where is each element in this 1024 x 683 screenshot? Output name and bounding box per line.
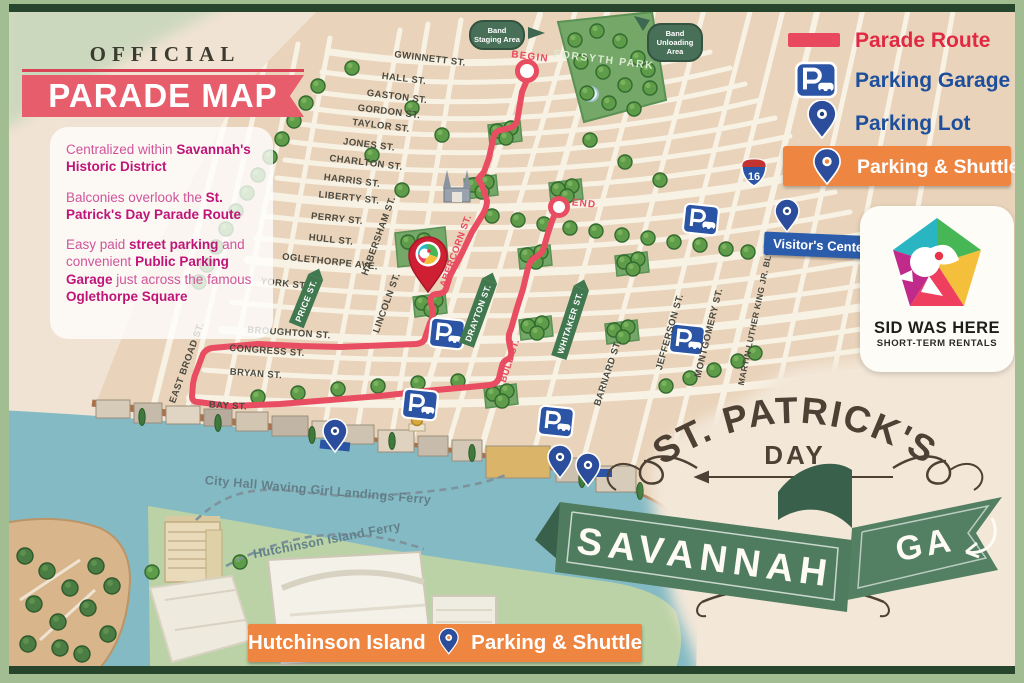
parking-garage-icon (683, 203, 720, 235)
band-unloading-area: Band Unloading Area (647, 23, 703, 62)
parking-garage-icon (538, 405, 575, 437)
parking-garage-icon (402, 388, 439, 420)
parking-garage-legend-icon (794, 60, 838, 100)
hutchinson-island-banner: Hutchinson Island Parking & Shuttle (248, 624, 642, 662)
parking-shuttle-legend-icon (812, 148, 842, 190)
hotel-tower (165, 516, 222, 582)
parade-map-poster: 16 ST. PATRICK'S DAY (0, 0, 1024, 683)
parking-lot-legend-icon (806, 100, 838, 144)
info-panel: Centralized within Savannah's Historic D… (50, 127, 273, 339)
sid-line2: SHORT-TERM RENTALS (860, 338, 1014, 349)
hutchinson-island-label: Hutchinson Island (248, 631, 426, 655)
street-label-bay: BAY ST. (209, 400, 248, 413)
banner-accent-line (22, 69, 304, 72)
i16-number: 16 (748, 171, 760, 183)
parade-map-title-banner: PARADE MAP (22, 75, 304, 117)
parade-map-title: PARADE MAP (48, 77, 277, 115)
route-begin-circle (518, 62, 537, 81)
legend-route-swatch (788, 33, 840, 47)
info-paragraph: Easy paid street parking and convenient … (66, 236, 259, 305)
banner-pin-icon (438, 628, 459, 658)
band-staging-area: Band Staging Area (469, 20, 525, 50)
info-paragraph: Balconies overlook the St. Patrick's Day… (66, 189, 259, 224)
parking-garage-icon (429, 317, 466, 349)
legend-parade-route: Parade Route (855, 29, 990, 53)
official-heading: OFFICIAL (40, 42, 290, 67)
sid-was-here-card: SID WAS HERE SHORT-TERM RENTALS (860, 206, 1014, 372)
legend-parking-lot: Parking Lot (855, 112, 971, 136)
legend-parking-garage: Parking Garage (855, 69, 1010, 93)
route-end-circle (551, 199, 568, 216)
banner-shuttle-label: Parking & Shuttle (471, 631, 642, 655)
info-paragraph: Centralized within Savannah's Historic D… (66, 141, 259, 176)
sid-line1: SID WAS HERE (860, 319, 1014, 338)
sid-logo-icon (882, 212, 992, 312)
legend-parking-shuttle: Parking & Shuttle (857, 156, 1020, 179)
